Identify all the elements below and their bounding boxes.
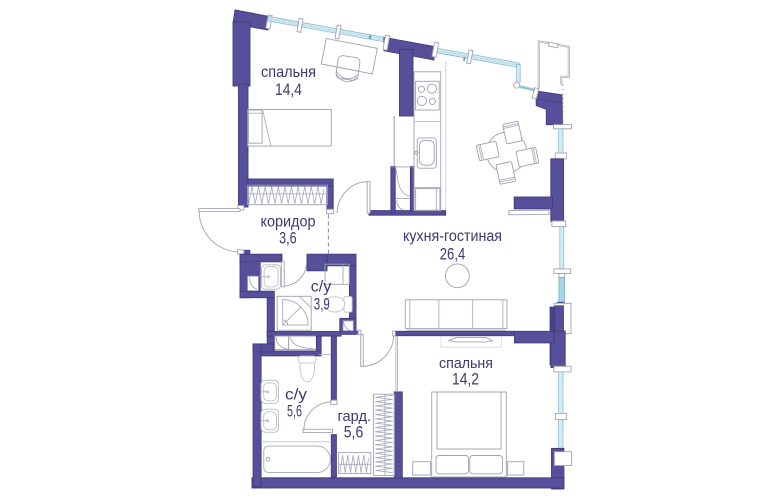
svg-text:14,4: 14,4: [275, 80, 302, 99]
svg-text:3,6: 3,6: [279, 230, 297, 248]
svg-text:с/у: с/у: [285, 387, 307, 404]
svg-text:коридор: коридор: [261, 214, 316, 231]
svg-text:14,2: 14,2: [452, 371, 479, 389]
svg-text:спальня: спальня: [439, 355, 493, 372]
svg-text:26,4: 26,4: [440, 245, 466, 264]
svg-text:с/у: с/у: [311, 279, 332, 296]
svg-text:спальня: спальня: [261, 64, 316, 81]
svg-text:5,6: 5,6: [344, 424, 364, 442]
svg-text:3,9: 3,9: [314, 296, 330, 314]
svg-text:кухня-гостиная: кухня-гостиная: [403, 228, 502, 245]
svg-text:5,6: 5,6: [287, 403, 302, 421]
svg-text:гард.: гард.: [338, 408, 372, 425]
